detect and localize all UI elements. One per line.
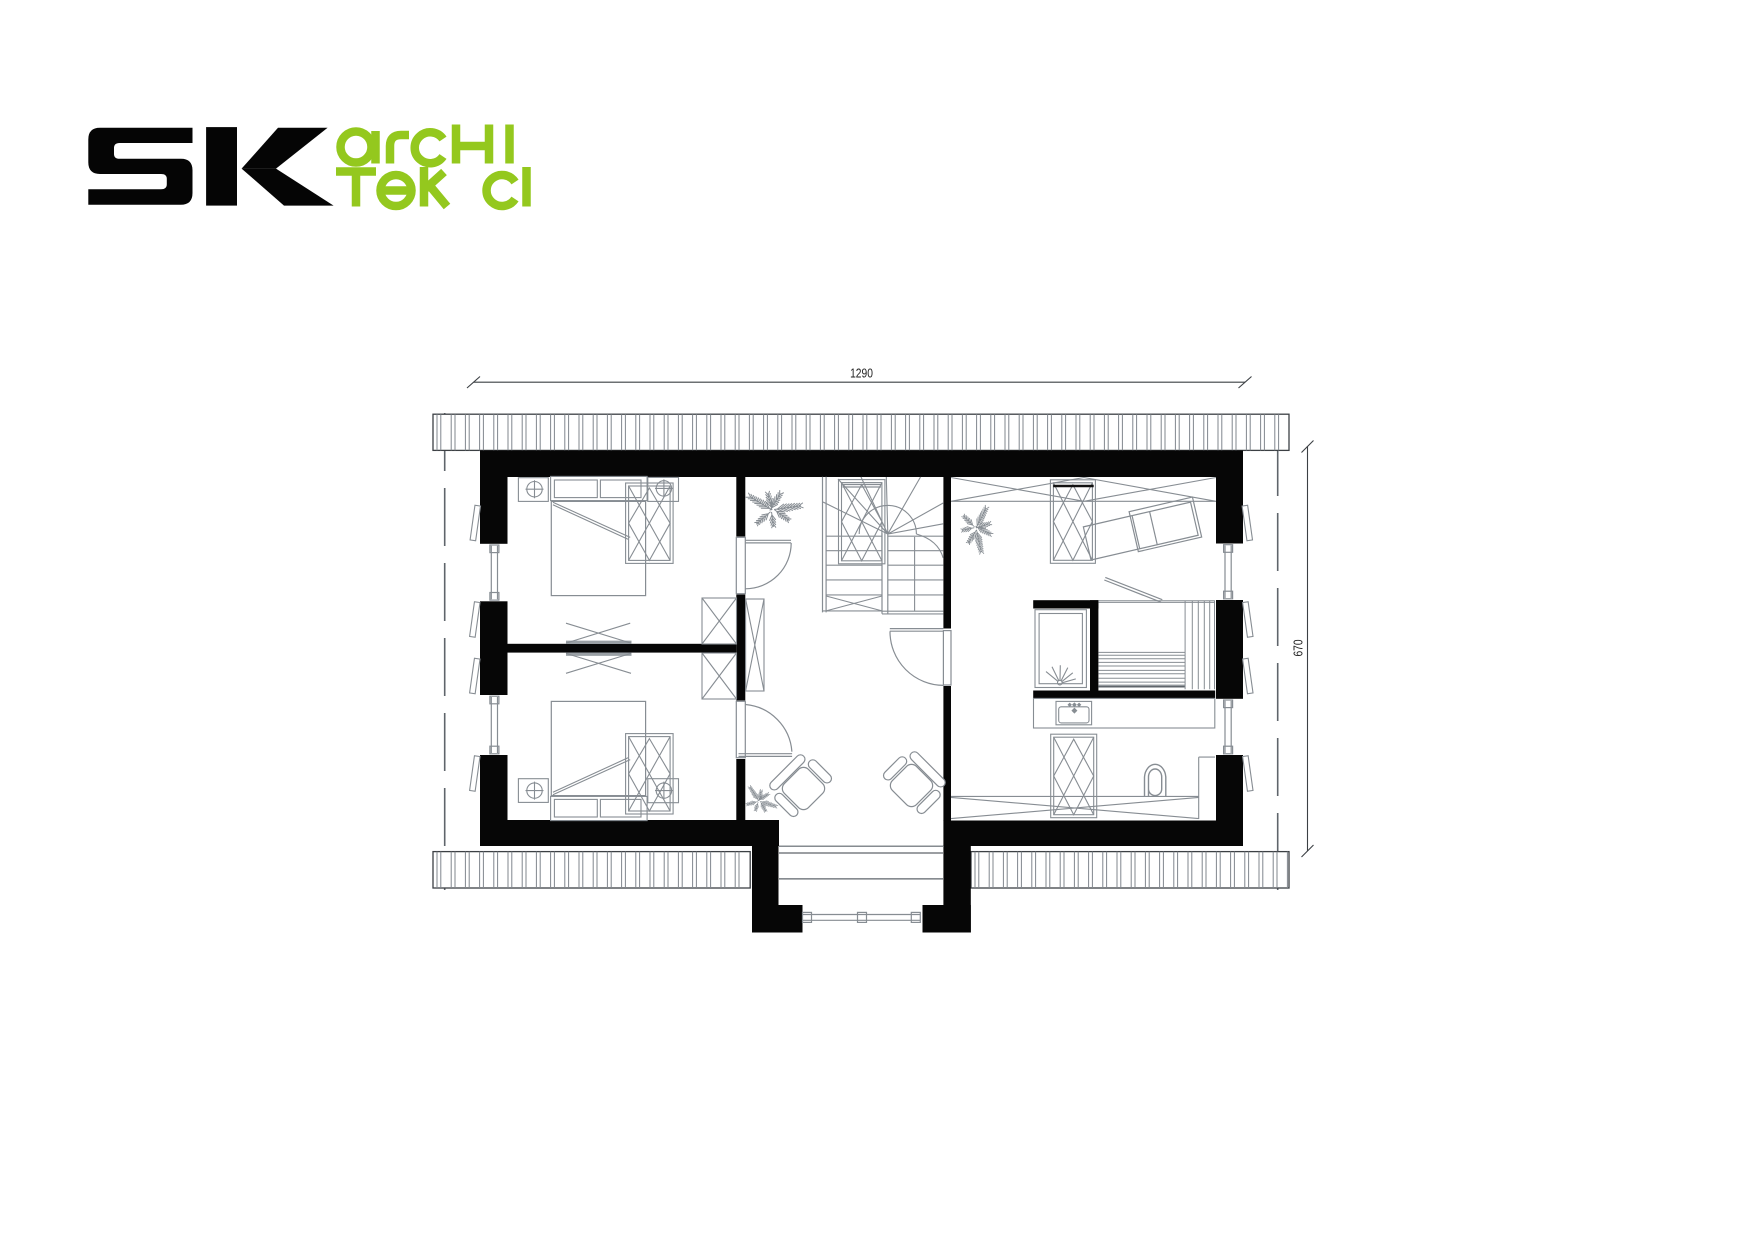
svg-text:670: 670 xyxy=(1293,639,1306,656)
svg-text:1290: 1290 xyxy=(850,368,873,381)
